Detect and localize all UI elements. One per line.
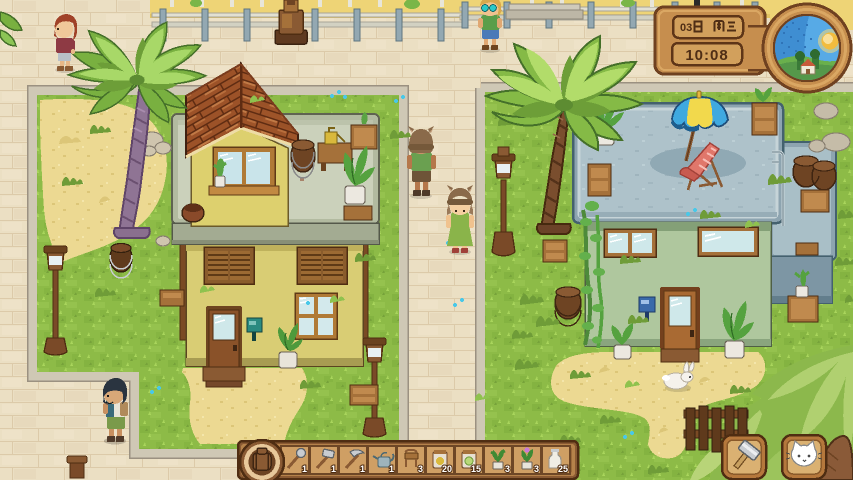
svg-text:20: 20 [442,464,452,474]
svg-text:1: 1 [389,464,394,474]
svg-text:1: 1 [360,464,365,474]
svg-text:3: 3 [534,464,539,474]
svg-text:1: 1 [302,464,307,474]
svg-text:3: 3 [505,464,510,474]
svg-text:15: 15 [471,464,481,474]
svg-text:3: 3 [418,464,423,474]
svg-text:03: 03 [680,22,692,34]
svg-text:1: 1 [331,464,336,474]
svg-text:10:08: 10:08 [685,47,728,64]
svg-text:25: 25 [558,464,568,474]
